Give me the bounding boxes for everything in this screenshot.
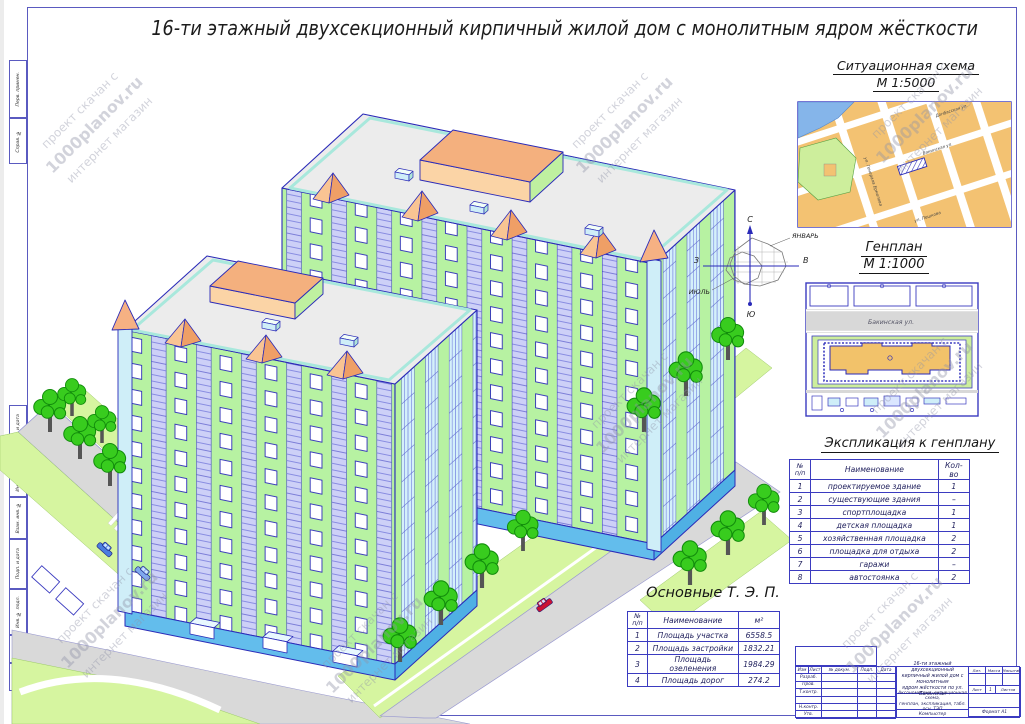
col-name: Наименование [647,612,738,629]
garage-block [56,588,84,615]
genplan-heading: Генплан М 1:1000 [828,240,960,274]
stamp-masshtab: Масштаб [1003,667,1021,674]
stamp-format: Формат А1 [969,708,1021,717]
drawing-sheet-page: { "sheet": { "title": "16-ти этажный дву… [0,0,1025,724]
axonometric-drawing: С Ю З В ЯНВАРЬ ИЮЛЬ [0,0,1025,724]
stamp-listov-label: Листов [996,686,1021,694]
windrose-west-label: З [694,256,699,265]
windrose-july-label: ИЮЛЬ [689,288,710,296]
situational-heading: Ситуационная схема М 1:5000 [800,58,1012,92]
bay-cone-roof [112,300,139,330]
stamp-doc-line: Аксонометрия, ситуационная схема, [897,691,968,702]
leader-line [770,238,790,246]
windrose-east-label: В [803,256,809,265]
stamp-massa: Масса [986,667,1003,674]
facade-left-front [125,330,395,664]
genplan-street-label: Бакинская ул. [868,319,914,326]
stamp-list-label: Лист [969,686,986,694]
table-row: 2Площадь застройки1832.21 [628,642,780,655]
table-row: 5хозяйственная площадка2 [790,532,970,545]
garage-block [32,566,60,593]
col-unit: м² [738,612,779,629]
table-row: 7гаражи– [790,558,970,571]
explication-heading: Экспликация к генплану [795,436,1025,453]
windrose-south-label: Ю [747,310,756,319]
stamp-row-prov: Пров. [796,682,822,689]
windrose-north-label: С [747,215,753,224]
stamp-col-podp: Подп. [858,667,877,674]
title-block-doc-name: 16-ти этажный двухсекционный кирпичный ж… [896,667,968,717]
title-block-continuation [795,646,877,666]
tep-heading-text: Основные Т. Э. П. [646,585,780,601]
table-row: 3Площадь озеленения1984.29 [628,655,780,674]
table-header-row: №п/п Наименование м² [628,612,780,629]
table-row: 8автостоянка2 [790,571,970,584]
stamp-title-line: 16-ти этажный двухсекционный [897,662,968,674]
park-block [824,164,836,176]
windrose-north-arrow [747,225,753,234]
genplan-heading-text: Генплан [861,240,926,257]
table-row: 6площадка для отдыха2 [790,545,970,558]
tep-table: №п/п Наименование м² 1Площадь участка655… [627,611,780,687]
explication-table: №п/п Наименование Кол-во 1проектируемое … [789,459,970,584]
col-name: Наименование [811,460,939,480]
title-block-signatures: Изм Лист № докум. Подп. Дата Разраб. Про… [796,667,896,717]
stamp-doc-line: генплан, экспликация, табл. осн. ТЭП [897,702,968,713]
situational-scale: М 1:5000 [873,75,940,92]
genplan-map: Бакинская ул. [806,283,978,416]
designed-building-footprint [830,343,950,374]
stamp-row-utv: Утв. [796,711,822,719]
table-header-row: №п/п Наименование Кол-во [790,460,970,480]
windrose-january-label: ЯНВАРЬ [791,232,819,240]
col-num: №п/п [628,612,648,629]
stamp-row-tkontr: Т.контр. [796,689,822,696]
building-section-front [112,256,477,680]
stamp-col-izm: Изм [796,667,809,674]
stamp-list-value: 1 [986,686,996,694]
tep-heading: Основные Т. Э. П. [628,585,798,601]
situational-heading-text: Ситуационная схема [833,58,979,75]
table-row: 4детская площадка1 [790,519,970,532]
stamp-col-doc: № докум. [822,667,858,674]
col-qty: Кол-во [938,460,969,480]
stamp-row-nkontr: Н.контр. [796,704,822,711]
table-row: 3спортплощадка1 [790,506,970,519]
col-num: №п/п [790,460,811,480]
title-block: Изм Лист № докум. Подп. Дата Разраб. Про… [795,666,1020,718]
table-row: 4Площадь дорог274.2 [628,674,780,687]
stamp-col-data: Дата [877,667,896,674]
title-block-attrs: Лит. Масса Масштаб Лист 1 Листов Формат … [968,667,1021,717]
table-row: 2существующие здания– [790,493,970,506]
stamp-col-list: Лист [809,667,822,674]
windrose-south-dot [748,302,752,306]
table-row: 1проектируемое здание1 [790,480,970,493]
stamp-row-razrab: Разраб. [796,674,822,681]
existing-buildings [810,286,972,306]
stamp-lit: Лит. [969,667,986,674]
genplan-scale: М 1:1000 [859,257,928,274]
stamp-title-line: кирпичный жилой дом с монолитным [897,674,968,686]
table-row: 1Площадь участка6558.5 [628,629,780,642]
explication-heading-text: Экспликация к генплану [821,436,1000,453]
